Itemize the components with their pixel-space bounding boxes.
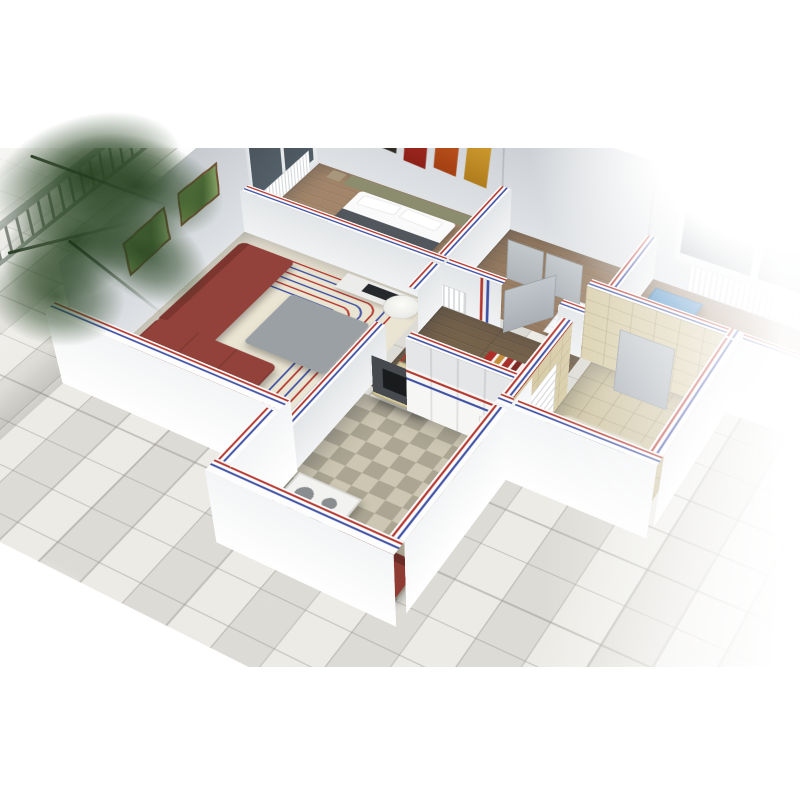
- rendered-scene: [0, 0, 800, 800]
- white-fade-right: [540, 146, 800, 671]
- white-margin-bottom: [0, 667, 800, 800]
- conifer-tree: [0, 116, 266, 346]
- white-fade-bottom-left: [0, 490, 190, 670]
